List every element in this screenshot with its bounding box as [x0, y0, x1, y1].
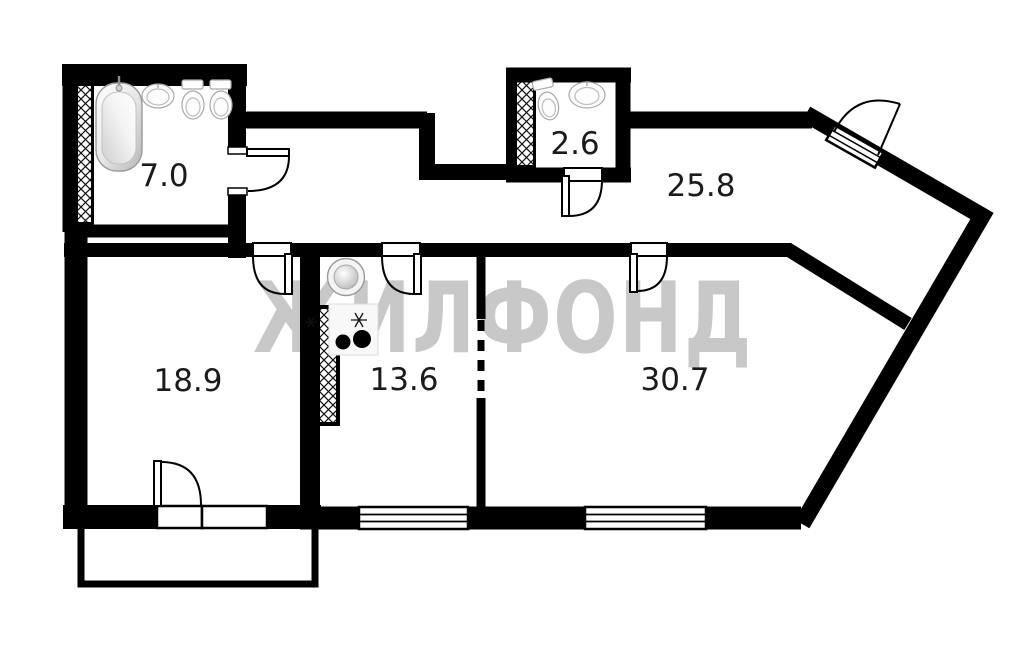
door-bathroom — [247, 149, 289, 191]
shaft-bathroom — [78, 78, 91, 222]
bathtub-icon — [96, 76, 142, 171]
toilet-icon — [182, 80, 204, 119]
window-kitchen — [359, 507, 468, 529]
jamb-bathroom — [228, 147, 247, 154]
balcony-door-sill — [157, 506, 202, 528]
burner-icon — [353, 330, 371, 348]
bidet-icon — [210, 80, 232, 119]
room-label-wc: 2.6 — [550, 126, 599, 162]
door-balcony-room-left — [154, 461, 201, 506]
burner-icon — [336, 335, 351, 350]
room-label-hall: 25.8 — [666, 168, 735, 204]
room-label-room-left: 18.9 — [153, 363, 222, 399]
wc-toilet-icon — [532, 77, 561, 121]
balcony — [81, 528, 315, 584]
window-room-left — [202, 506, 267, 528]
floor-plan: ЖИЛФОНД — [0, 0, 1024, 649]
room-label-kitchen: 13.6 — [369, 362, 438, 398]
kitchen-sink-icon — [328, 259, 365, 296]
jamb-bathroom2 — [228, 188, 247, 195]
window-room-right — [585, 507, 706, 529]
floor-plan-svg: ЖИЛФОНД — [0, 0, 1024, 649]
room-label-room-right: 30.7 — [640, 362, 709, 398]
bathroom-sink-icon — [142, 84, 174, 108]
wc-sink-icon — [569, 81, 605, 108]
room-label-bathroom: 7.0 — [139, 158, 188, 194]
shaft-wc — [517, 77, 533, 165]
